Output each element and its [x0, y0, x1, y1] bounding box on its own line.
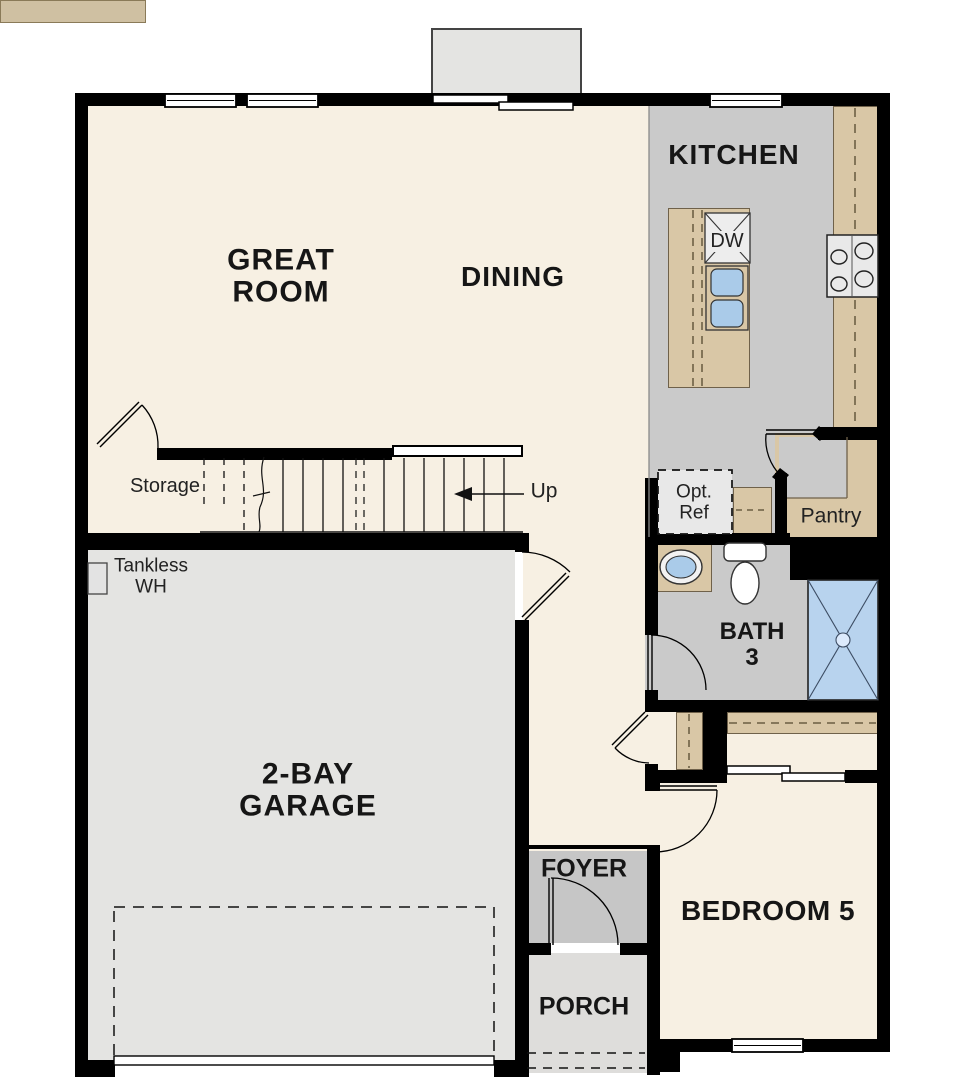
- bedroom5-label: BEDROOM 5: [681, 896, 855, 926]
- wall-bath-left-upper: [645, 545, 658, 635]
- kitchen-counter-right: [833, 106, 878, 428]
- porch-label: PORCH: [539, 994, 629, 1021]
- pantry-label: Pantry: [801, 506, 862, 529]
- wall-bedroom-top-right: [845, 770, 878, 783]
- up-label: Up: [531, 481, 558, 504]
- wall-pantry-left: [775, 473, 787, 537]
- patio-pad: [431, 28, 582, 98]
- wall-bedroom-bottom: [647, 1039, 890, 1052]
- wall-pantry-top: [818, 427, 890, 440]
- wall-garage-bottom-left: [75, 1060, 115, 1077]
- wall-foyer-bottom-right: [620, 943, 647, 955]
- wall-bath-top: [645, 533, 790, 545]
- storage-shelf: [0, 0, 146, 23]
- closet-shelf-vertical: [676, 712, 703, 770]
- wall-foyer-bottom-left: [515, 943, 551, 955]
- storage-label: Storage: [130, 476, 200, 498]
- garage-label: 2-BAY GARAGE: [239, 759, 377, 824]
- bath3-label: BATH 3: [720, 619, 785, 671]
- wall-garage-bottom-right: [494, 1060, 529, 1077]
- counter-by-ref: [733, 487, 772, 535]
- wall-top: [75, 93, 890, 106]
- wall-stairs-top: [157, 448, 392, 460]
- wall-left-of-ref: [645, 478, 658, 533]
- shower-icon: [808, 580, 878, 700]
- pantry-walk-area: [779, 437, 847, 498]
- tankless-wh-label: Tankless WH: [114, 556, 188, 597]
- great-room-label: GREAT ROOM: [227, 245, 335, 310]
- wall-above-shower: [790, 537, 878, 580]
- stair-landing-edge: [392, 445, 523, 457]
- kitchen-label: KITCHEN: [668, 140, 799, 170]
- wall-garage-right-lower: [515, 620, 529, 1075]
- wall-closet-divider: [703, 712, 727, 772]
- wall-left: [75, 93, 88, 1077]
- bath3-vanity: [652, 543, 712, 592]
- dishwasher-label: DW: [710, 231, 743, 253]
- foyer-label: FOYER: [541, 856, 627, 883]
- dining-label: DINING: [461, 262, 565, 292]
- wall-bedroom-top-left: [645, 770, 727, 783]
- floor-plan: GREAT ROOM DINING KITCHEN 2-BAY GARAGE B…: [0, 0, 975, 1089]
- wall-garage-top: [88, 533, 518, 550]
- wall-right: [877, 93, 890, 1052]
- wall-bath-bottom: [645, 700, 890, 712]
- wall-garage-right-upper: [515, 533, 529, 552]
- opt-ref-label: Opt. Ref: [676, 482, 712, 523]
- closet-shelf-horizontal: [727, 712, 878, 734]
- wall-bedroom-west-stub: [645, 783, 660, 791]
